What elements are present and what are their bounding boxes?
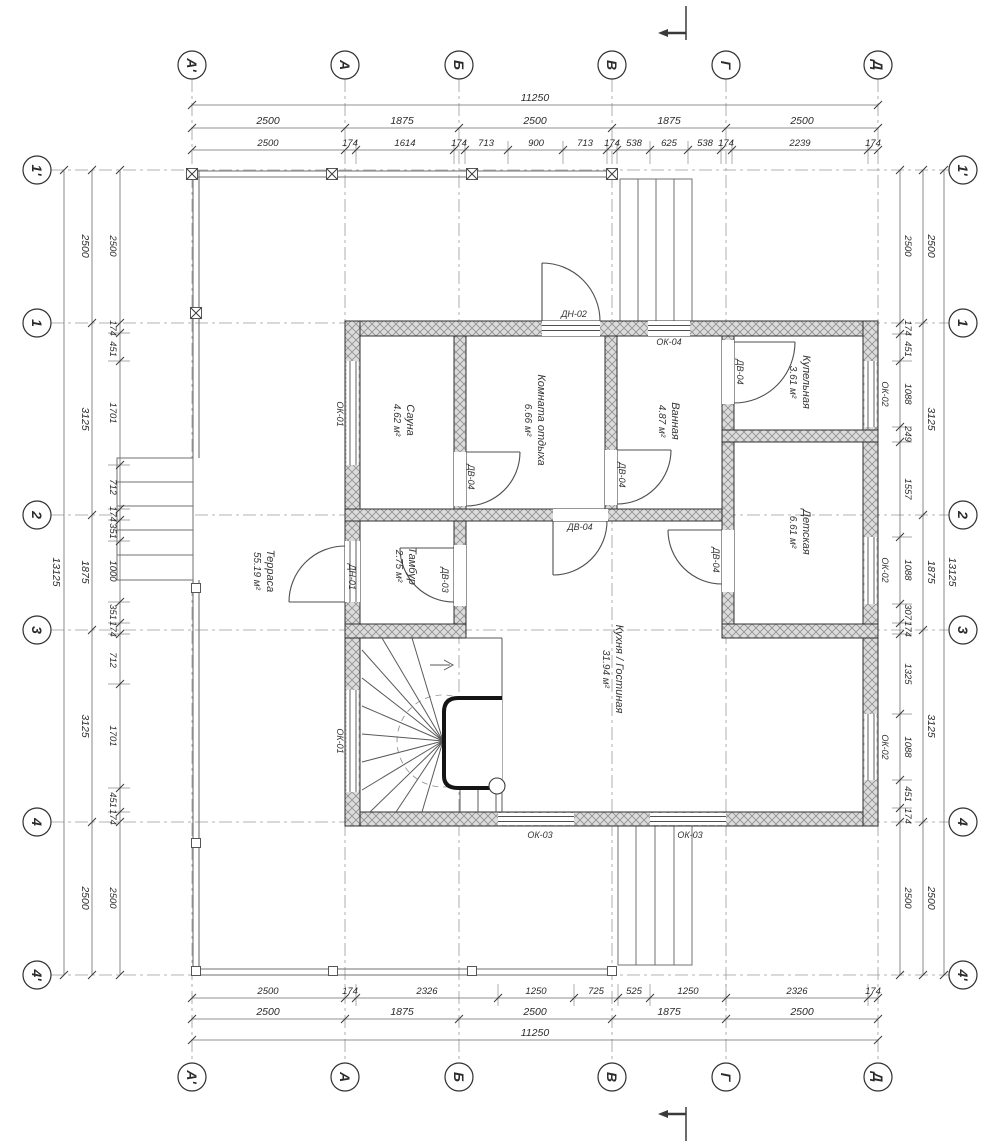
dim-label: 1088: [902, 736, 913, 758]
dim-label: 3125: [925, 714, 937, 738]
porch-steps-bottom: [618, 826, 692, 965]
axis-label: 3: [955, 626, 971, 634]
room-area: 55.19 м²: [251, 552, 262, 591]
wall-kupelnaya-south: [722, 430, 878, 442]
dim-label: 2500: [902, 886, 913, 909]
wall-exterior-north: [345, 321, 878, 336]
axis-label: 1': [29, 164, 45, 176]
dim-label: 2500: [107, 234, 118, 257]
window-tag-ok02: ОК-02: [880, 557, 890, 582]
window-tag-ok01: ОК-01: [335, 401, 345, 426]
room-area: 3.61 м²: [787, 366, 798, 399]
dim-label: 174: [107, 506, 118, 522]
wall-stairs-north: [345, 624, 466, 638]
dim-label: 307: [902, 604, 913, 621]
room-name: Комната отдыха: [535, 374, 547, 465]
door-tag-dv03: ДВ-03: [440, 566, 450, 592]
axis-label: 3: [29, 626, 45, 634]
window-ok03-b: [650, 813, 726, 825]
room-area: 31.94 м²: [600, 650, 611, 689]
door-tag-dv04: ДВ-04: [617, 461, 627, 487]
door-dv04-5-opening: [722, 530, 734, 592]
axis-label: 4': [29, 968, 45, 981]
axis-label: 4: [29, 817, 45, 826]
window-tag-ok01: ОК-01: [335, 728, 345, 753]
porch-steps-left: [117, 458, 193, 580]
axis-label: 4: [955, 817, 971, 826]
railing-post-x: [187, 169, 618, 319]
section-mark-icon: [658, 1107, 686, 1141]
dim-label: 3125: [925, 407, 937, 431]
window-ok02-a: [865, 361, 877, 427]
window-ok04: [648, 321, 690, 336]
axis-label: 4': [955, 968, 971, 981]
dim-label: 451: [902, 341, 913, 357]
dim-label: 11250: [521, 92, 550, 104]
dim-label: 1088: [902, 383, 913, 405]
window-ok02-b: [865, 537, 877, 604]
dim-label: 525: [626, 986, 643, 997]
dim-label: 713: [577, 138, 594, 149]
room-label-detskaya: Детская 6.61 м²: [787, 507, 812, 555]
dim-label: 1875: [79, 560, 91, 584]
dim-label: 538: [697, 138, 714, 149]
door-dv04-3-opening: [722, 340, 734, 404]
room-label-sauna: Сауна 4.62 м²: [391, 404, 416, 437]
window-tag-ok03: ОК-03: [527, 830, 552, 840]
room-label-kuhnya-gostinaya: Кухня / Гостиная 31.94 м²: [600, 625, 625, 714]
dim-label: 3125: [79, 407, 91, 431]
dim-label: 2500: [925, 233, 937, 258]
dim-label: 2500: [255, 1006, 280, 1018]
dim-label: 1325: [902, 663, 913, 685]
door-tag-dv04: ДВ-04: [566, 522, 592, 532]
dim-label: 351: [107, 604, 118, 620]
door-dn01-swing: [289, 546, 345, 602]
window-tag-ok03: ОК-03: [677, 830, 702, 840]
dim-label: 712: [107, 479, 118, 496]
room-label-kupelnaya: Купельная 3.61 м²: [787, 355, 812, 409]
dim-label: 174: [342, 986, 358, 997]
dim-label: 451: [107, 792, 118, 808]
dim-label: 2500: [255, 115, 280, 127]
dim-label: 1088: [902, 559, 913, 581]
room-area: 6.66 м²: [522, 404, 533, 437]
dim-label: 2326: [785, 986, 808, 997]
floor-plan-page: 11250 2500 1875 2500 1875 2500 2500 174 …: [0, 0, 1000, 1147]
dim-label: 1701: [107, 725, 118, 746]
door-tag-dv04: ДВ-04: [711, 546, 721, 572]
window-tag-ok02: ОК-02: [880, 381, 890, 406]
dim-label: 1557: [902, 478, 913, 500]
axis-label: А': [184, 1069, 200, 1084]
room-label-vannaya: Ванная 4.87 м²: [656, 402, 681, 440]
axis-label: 1': [955, 164, 971, 176]
dim-label: 174: [718, 138, 734, 149]
dim-label: 3125: [79, 714, 91, 738]
dim-label: 2500: [107, 886, 118, 909]
room-name: Кухня / Гостиная: [613, 625, 625, 714]
dim-label: 2500: [79, 885, 91, 910]
dim-label: 174: [902, 808, 913, 824]
spiral-staircase: [362, 638, 505, 812]
dim-label: 174: [865, 138, 881, 149]
dim-label: 1875: [925, 560, 937, 584]
axis-label: 1: [955, 319, 971, 327]
dim-label: 1875: [657, 1006, 681, 1018]
dim-label: 2500: [789, 115, 814, 127]
axis-label: А: [337, 1071, 353, 1082]
room-label-tambur: Тамбур 2.75 м²: [393, 547, 418, 585]
window-ok01-b: [347, 690, 359, 792]
door-tag-dn01: ДН-01: [347, 563, 357, 590]
room-area: 4.87 м²: [656, 405, 667, 438]
axis-label: Г: [718, 61, 734, 71]
room-area: 2.75 м²: [393, 549, 404, 583]
room-label-komnata-otdyha: Комната отдыха 6.66 м²: [522, 374, 547, 465]
door-tag-dv04: ДВ-04: [466, 463, 476, 489]
axis-label: Г: [718, 1073, 734, 1083]
axis-label: Д: [870, 59, 886, 70]
dim-label: 13125: [946, 557, 958, 586]
room-name: Детская: [800, 507, 812, 555]
stair-newel-post: [489, 778, 505, 794]
dim-label: 2239: [788, 138, 811, 149]
dim-label: 174: [107, 809, 118, 825]
window-ok01-a: [347, 361, 359, 465]
axis-label: А': [184, 57, 200, 72]
room-name: Ванная: [669, 402, 681, 440]
dim-label: 712: [107, 652, 118, 669]
room-label-terrasa: Терраса 55.19 м²: [251, 550, 276, 592]
door-dv04-1-opening: [454, 452, 466, 506]
window-tag-ok04: ОК-04: [656, 337, 681, 347]
dim-label: 2326: [415, 986, 438, 997]
door-dv04-4-opening: [553, 509, 608, 521]
room-area: 4.62 м²: [391, 404, 402, 437]
dim-label: 1875: [657, 115, 681, 127]
dim-label: 174: [107, 621, 118, 637]
dim-label: 351: [107, 523, 118, 539]
section-mark-icon: [658, 6, 686, 40]
dim-label: 1250: [677, 986, 699, 997]
door-tag-dv04: ДВ-04: [735, 358, 745, 384]
dim-label: 174: [342, 138, 358, 149]
axis-label: В: [604, 60, 620, 70]
dim-label: 713: [478, 138, 495, 149]
window-tag-ok02: ОК-02: [880, 734, 890, 759]
floor-plan-canvas: 11250 2500 1875 2500 1875 2500 2500 174 …: [0, 0, 1000, 1147]
dim-label: 2500: [925, 885, 937, 910]
room-name: Купельная: [800, 355, 812, 409]
dim-label: 2500: [522, 1006, 547, 1018]
axis-label: 2: [955, 510, 971, 519]
room-area: 6.61 м²: [787, 516, 798, 549]
axis-label: Д: [870, 1071, 886, 1082]
dim-label: 2500: [256, 986, 279, 997]
axis-label: 2: [29, 510, 45, 519]
dim-label: 174: [902, 621, 913, 637]
axis-label: А: [337, 59, 353, 70]
dim-label: 174: [451, 138, 467, 149]
dim-label: 1875: [390, 115, 414, 127]
dim-label: 725: [588, 986, 605, 997]
dim-label: 2500: [522, 115, 547, 127]
dim-label: 11250: [521, 1027, 550, 1039]
door-dv04-2-opening: [605, 450, 617, 505]
dim-label: 900: [528, 138, 545, 149]
dim-label: 451: [107, 341, 118, 357]
wall-exterior-south: [345, 812, 878, 826]
dim-label: 1875: [390, 1006, 414, 1018]
dim-label: 2500: [256, 138, 279, 149]
dim-label: 174: [865, 986, 881, 997]
axis-label: 1: [29, 319, 45, 327]
dim-label: 625: [661, 138, 678, 149]
door-tag-dn02: ДН-02: [560, 309, 587, 319]
dim-label: 538: [626, 138, 643, 149]
porch-steps-top: [620, 179, 692, 321]
dim-label: 2500: [79, 233, 91, 258]
dim-label: 249: [902, 425, 913, 443]
room-name: Сауна: [404, 404, 416, 436]
wall-interior-axis-2: [345, 509, 723, 521]
dim-label: 1701: [107, 402, 118, 423]
door-dn02-opening: [542, 321, 600, 336]
dim-label: 451: [902, 786, 913, 802]
door-dv03-opening: [454, 545, 466, 606]
axis-label: Б: [451, 1072, 467, 1082]
axis-label: Б: [451, 60, 467, 70]
wall-detskaya-south: [722, 624, 878, 638]
dim-label: 1614: [394, 138, 415, 149]
window-ok03-a: [498, 813, 574, 825]
stair-landing: [446, 700, 502, 786]
dim-label: 2500: [902, 234, 913, 257]
dim-label: 174: [604, 138, 620, 149]
dim-label: 1250: [525, 986, 547, 997]
dim-label: 174: [902, 320, 913, 336]
room-name: Терраса: [264, 550, 276, 592]
axis-label: В: [604, 1072, 620, 1082]
dim-label: 13125: [50, 557, 62, 586]
dim-label: 2500: [789, 1006, 814, 1018]
dim-label: 174: [107, 320, 118, 336]
room-name: Тамбур: [406, 547, 418, 585]
window-ok02-c: [865, 714, 877, 780]
dim-label: 1000: [107, 560, 118, 582]
